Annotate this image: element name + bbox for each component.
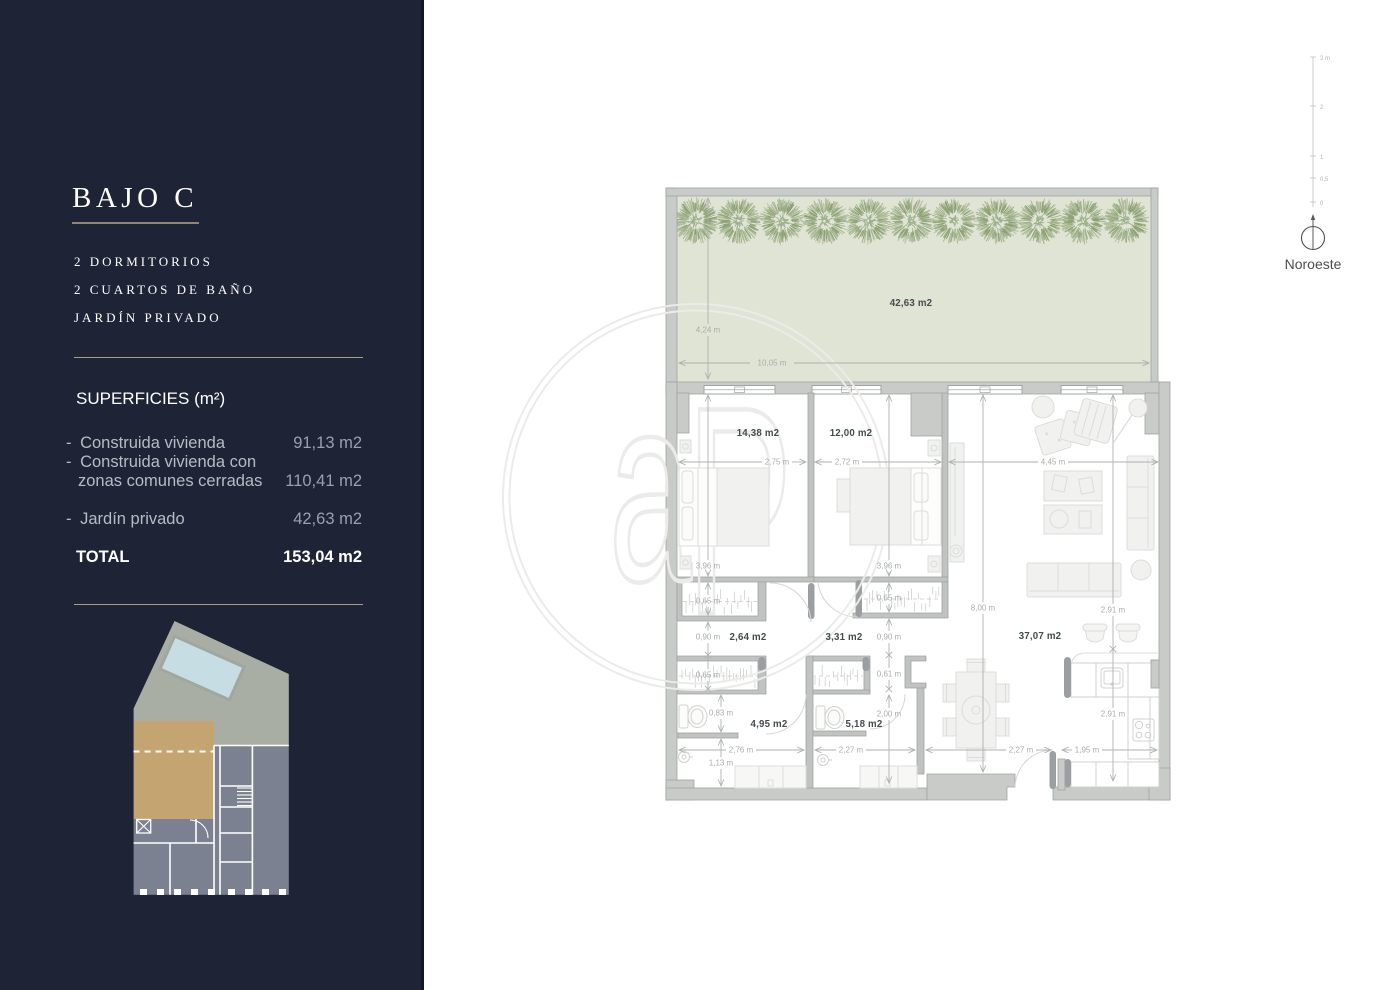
- svg-text:2,75 m: 2,75 m: [765, 458, 790, 467]
- svg-text:5,18 m2: 5,18 m2: [846, 719, 883, 730]
- svg-text:0,61 m: 0,61 m: [877, 670, 902, 679]
- svg-text:8,00 m: 8,00 m: [971, 604, 996, 613]
- svg-text:0,83 m: 0,83 m: [709, 709, 734, 718]
- svg-text:4,24 m: 4,24 m: [696, 326, 721, 335]
- svg-text:0,65 m: 0,65 m: [877, 594, 902, 603]
- svg-text:0,5: 0,5: [1320, 177, 1329, 183]
- svg-text:0,65 m: 0,65 m: [696, 671, 721, 680]
- svg-text:42,63 m2: 42,63 m2: [890, 298, 933, 309]
- svg-text:2,91 m: 2,91 m: [1101, 710, 1126, 719]
- svg-text:2,76 m: 2,76 m: [729, 746, 754, 755]
- svg-text:0,65 m: 0,65 m: [696, 597, 721, 606]
- svg-text:3,31 m2: 3,31 m2: [826, 632, 863, 643]
- svg-text:1: 1: [1320, 155, 1324, 161]
- svg-text:2,27 m: 2,27 m: [839, 746, 864, 755]
- svg-text:14,38 m2: 14,38 m2: [737, 428, 780, 439]
- svg-text:4,45 m: 4,45 m: [1041, 458, 1066, 467]
- svg-text:1,13 m: 1,13 m: [709, 759, 734, 768]
- svg-text:2,64 m2: 2,64 m2: [730, 632, 767, 643]
- svg-text:1,95 m: 1,95 m: [1075, 746, 1100, 755]
- svg-text:3,96 m: 3,96 m: [696, 562, 721, 571]
- svg-text:2,72 m: 2,72 m: [835, 458, 860, 467]
- svg-text:4,95 m2: 4,95 m2: [751, 719, 788, 730]
- svg-text:0: 0: [1320, 201, 1324, 207]
- svg-text:37,07 m2: 37,07 m2: [1019, 631, 1062, 642]
- svg-text:12,00 m2: 12,00 m2: [830, 428, 873, 439]
- svg-text:0,90 m: 0,90 m: [696, 633, 721, 642]
- svg-text:3,96 m: 3,96 m: [877, 562, 902, 571]
- svg-text:2,27 m: 2,27 m: [1009, 746, 1034, 755]
- svg-text:2,00 m: 2,00 m: [877, 710, 902, 719]
- svg-text:2,91 m: 2,91 m: [1101, 606, 1126, 615]
- svg-text:0,90 m: 0,90 m: [877, 633, 902, 642]
- svg-text:2: 2: [1320, 105, 1324, 111]
- svg-text:Noroeste: Noroeste: [1285, 256, 1342, 272]
- svg-text:10,05 m: 10,05 m: [758, 359, 787, 368]
- svg-text:3 m: 3 m: [1320, 56, 1330, 62]
